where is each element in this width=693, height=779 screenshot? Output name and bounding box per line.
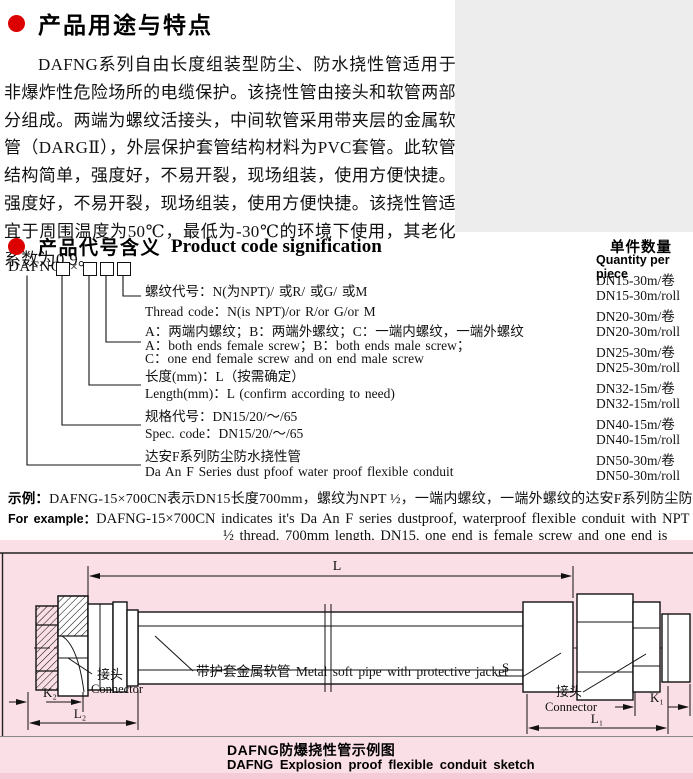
dim-label-S: S [502, 660, 509, 675]
quantity-item: DN25-30m/卷 [596, 345, 693, 360]
dim-label-K2: K₂ [43, 685, 57, 700]
sketch-caption-en: DAFNG Explosion proof flexible conduit s… [227, 757, 535, 772]
example-label-cn: 示例： [8, 491, 49, 506]
legend-series-en: Da An F Series dust pfoof water proof fl… [145, 463, 454, 480]
quantity-pair-dn50: DN50-30m/卷 DN50-30m/roll [596, 453, 693, 483]
section1-title: 产品用途与特点 [38, 6, 213, 40]
quantity-item: DN25-30m/roll [596, 360, 693, 375]
legend-length-en: Length(mm)：L (confirm according to need) [145, 385, 395, 402]
code-box-ends [100, 262, 114, 276]
photo-placeholder [455, 0, 693, 232]
legend-length-cn: 长度(mm)：L（按需确定） [145, 368, 395, 385]
dim-label-L: L [333, 559, 342, 574]
quantity-item: DN32-15m/卷 [596, 381, 693, 396]
sketch-panel: L K₂ L₂ 带护套金属软管 Metal soft pipe with pro… [0, 540, 693, 779]
sketch-caption: DAFNG防爆挠性管示例图 DAFNG Explosion proof flex… [227, 740, 535, 772]
quantity-item: DN15-30m/roll [596, 288, 693, 303]
quantity-item: DN50-30m/roll [596, 468, 693, 483]
example-label-en: For example： [8, 512, 96, 526]
quantity-pair-dn15: DN15-30m/卷 DN15-30m/roll [596, 273, 693, 303]
quantity-item: DN20-30m/卷 [596, 309, 693, 324]
legend-thread-en: Thread code：N(is NPT)/or R/or G/or M [145, 303, 376, 320]
quantity-item: DN50-30m/卷 [596, 453, 693, 468]
quantity-pair-dn20: DN20-30m/卷 DN20-30m/roll [596, 309, 693, 339]
section-heading-code: 产品代号含义 Product code signification [0, 233, 382, 260]
bottom-strip [0, 773, 693, 779]
legend-spec-en: Spec. code：DN15/20/～/65 [145, 425, 303, 442]
connector-label-right-cn: 接头 [556, 684, 582, 699]
quantity-title-cn: 单件数量 [596, 236, 693, 253]
conduit-drawing: L K₂ L₂ 带护套金属软管 Metal soft pipe with pro… [0, 540, 693, 740]
quantity-pair-dn25: DN25-30m/卷 DN25-30m/roll [596, 345, 693, 375]
section-heading-usage: 产品用途与特点 [0, 6, 213, 40]
legend-spec: 规格代号：DN15/20/～/65 Spec. code：DN15/20/～/6… [145, 408, 303, 442]
legend-thread-cn: 螺纹代号：N(为NPT)/ 或R/ 或G/ 或M [145, 283, 376, 300]
dim-label-L1: L₁ [591, 711, 603, 726]
catalog-page: 产品用途与特点 DAFNG系列自由长度组装型防尘、防水挠性管适用于非爆炸性危险场… [0, 0, 693, 779]
legend-ends-en: A：both ends female screw；B：both ends mal… [145, 339, 524, 353]
legend-length: 长度(mm)：L（按需确定） Length(mm)：L (confirm acc… [145, 368, 395, 402]
legend-ends-cn: A：两端内螺纹；B：两端外螺纹；C：一端内螺纹，一端外螺纹 [145, 325, 524, 339]
dim-label-L2: L₂ [74, 706, 86, 721]
quantity-item: DN32-15m/roll [596, 396, 693, 411]
quantity-item: DN40-15m/roll [596, 432, 693, 447]
red-bullet-icon [8, 238, 25, 255]
dim-label-K1: K₁ [650, 690, 664, 705]
legend-ends-en2: C：one end female screw and on end male s… [145, 352, 524, 366]
legend-thread: 螺纹代号：N(为NPT)/ 或R/ 或G/ 或M Thread code：N(i… [145, 283, 376, 320]
connector-label-left-cn: 接头 [97, 667, 123, 682]
quantity-per-piece-list: 单件数量 Quantity per piece DN15-30m/卷 DN15-… [596, 236, 693, 489]
pipe-label: 带护套金属软管 Metal soft pipe with protective … [196, 664, 508, 679]
quantity-pair-dn32: DN32-15m/卷 DN32-15m/roll [596, 381, 693, 411]
quantity-item: DN40-15m/卷 [596, 417, 693, 432]
legend-series: 达安F系列防尘防水挠性管 Da An F Series dust pfoof w… [145, 448, 454, 480]
code-box-spec [56, 262, 70, 276]
code-box-thread [117, 262, 131, 276]
section2-title-en: Product code signification [171, 236, 382, 258]
code-times-sign: × [70, 260, 78, 276]
product-code-diagram: DAFNG- × 螺纹代号：N(为NPT)/ 或R/ 或G/ 或M Thread… [0, 258, 580, 480]
legend-ends: A：两端内螺纹；B：两端外螺纹；C：一端内螺纹，一端外螺纹 A：both end… [145, 325, 524, 366]
sketch-caption-cn: DAFNG防爆挠性管示例图 [227, 740, 535, 757]
section2-title-cn: 产品代号含义 [38, 233, 161, 260]
quantity-title-en: Quantity per piece [596, 253, 693, 270]
quantity-item: DN15-30m/卷 [596, 273, 693, 288]
connector-label-left-en: Connector [91, 682, 144, 696]
legend-spec-cn: 规格代号：DN15/20/～/65 [145, 408, 303, 425]
example-text-cn: DAFNG-15×700CN表示DN15长度700mm，螺纹为NPT ½，一端内… [49, 492, 693, 507]
code-box-length [83, 262, 97, 276]
example-line-cn: 示例：DAFNG-15×700CN表示DN15长度700mm，螺纹为NPT ½，… [8, 487, 690, 508]
red-bullet-icon [8, 15, 25, 32]
quantity-item: DN20-30m/roll [596, 324, 693, 339]
quantity-pair-dn40: DN40-15m/卷 DN40-15m/roll [596, 417, 693, 447]
